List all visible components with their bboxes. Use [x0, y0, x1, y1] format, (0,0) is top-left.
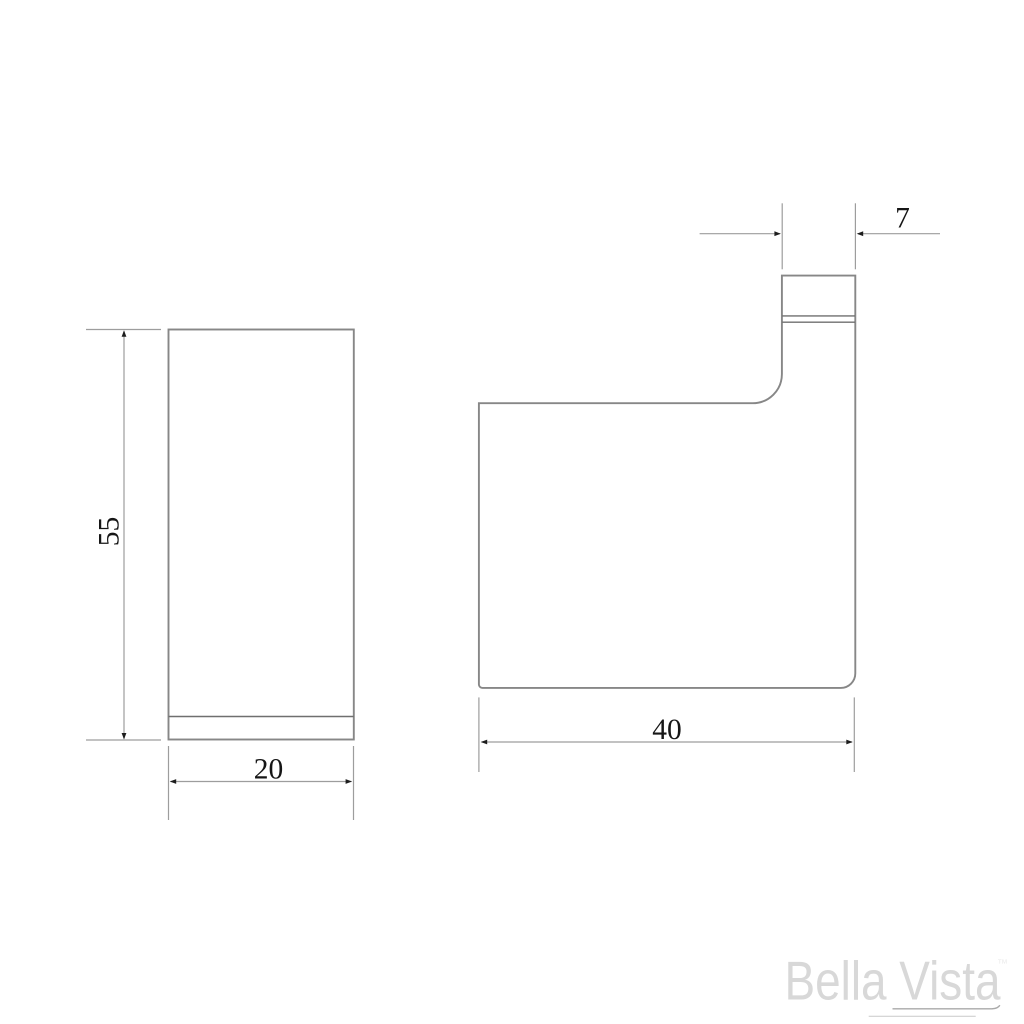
svg-text:55: 55 [94, 517, 126, 547]
svg-text:7: 7 [895, 203, 910, 235]
svg-text:Bella Vista: Bella Vista [785, 950, 1001, 1012]
svg-text:20: 20 [254, 754, 284, 786]
svg-text:™: ™ [997, 958, 1008, 970]
svg-text:40: 40 [652, 714, 682, 746]
